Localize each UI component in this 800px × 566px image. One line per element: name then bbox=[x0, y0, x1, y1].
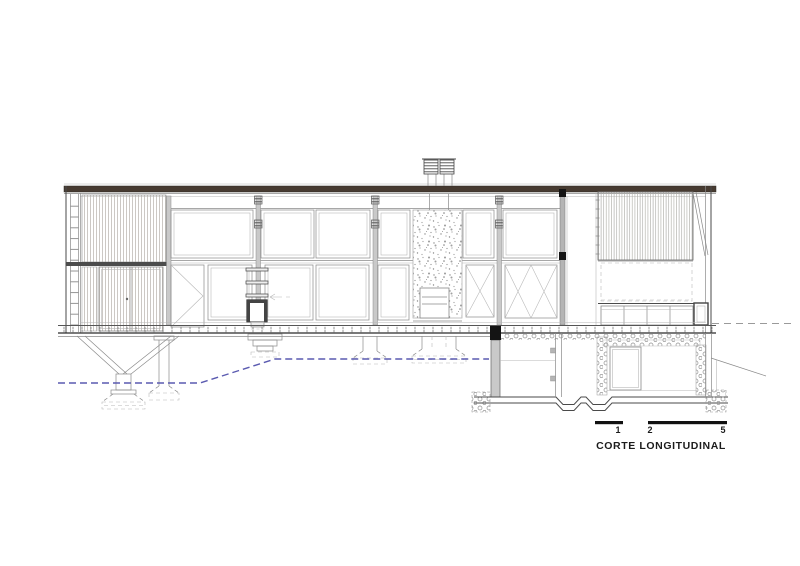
awning-window bbox=[505, 265, 557, 318]
roof-slab bbox=[64, 186, 716, 192]
scale-bar-segment-1 bbox=[595, 421, 623, 424]
foundation-pier-a bbox=[149, 336, 179, 400]
siding-panel-upper bbox=[82, 195, 166, 262]
shutter-slat-panel bbox=[596, 192, 709, 261]
left-siding-facade bbox=[66, 195, 168, 331]
scale-bar-segment-2 bbox=[648, 421, 727, 424]
longitudinal-section-drawing: 1 2 5 CORTE LONGITUDINAL bbox=[0, 0, 800, 566]
ground-line bbox=[58, 359, 489, 383]
v-support bbox=[77, 336, 179, 409]
basement-slab bbox=[474, 397, 728, 411]
scale-label-2: 2 bbox=[647, 425, 652, 435]
architectural-drawing-sheet: 1 2 5 CORTE LONGITUDINAL bbox=[0, 0, 800, 566]
basement-door bbox=[610, 347, 641, 390]
basement-left-wall bbox=[491, 340, 500, 397]
chimney-cap-left bbox=[424, 160, 438, 174]
dashed-opening bbox=[601, 263, 692, 301]
drawing-title: CORTE LONGITUDINAL bbox=[596, 440, 726, 452]
masonry-chimney-wall bbox=[413, 194, 462, 321]
swing-arrow bbox=[270, 294, 290, 300]
siding-strip-lower bbox=[82, 267, 97, 331]
right-footing bbox=[706, 390, 726, 412]
scale-bar: 1 2 5 bbox=[595, 421, 727, 435]
scale-label-1: 1 bbox=[615, 425, 620, 435]
bench-cabinet bbox=[598, 303, 708, 325]
basement-divider-wall bbox=[551, 333, 562, 397]
foundation-pier-b bbox=[353, 336, 387, 364]
siding-girt-beam bbox=[66, 262, 168, 266]
door-handle bbox=[126, 298, 128, 300]
chimney-cap-right bbox=[440, 160, 454, 174]
fireplace-opening bbox=[420, 288, 449, 318]
left-footing bbox=[472, 392, 490, 412]
scale-label-5: 5 bbox=[720, 425, 725, 435]
right-wall-bay bbox=[567, 192, 596, 325]
chimney-stacks bbox=[422, 159, 456, 186]
board-door bbox=[99, 267, 163, 331]
under-floor-steps bbox=[248, 334, 282, 357]
window-wall bbox=[167, 189, 567, 327]
